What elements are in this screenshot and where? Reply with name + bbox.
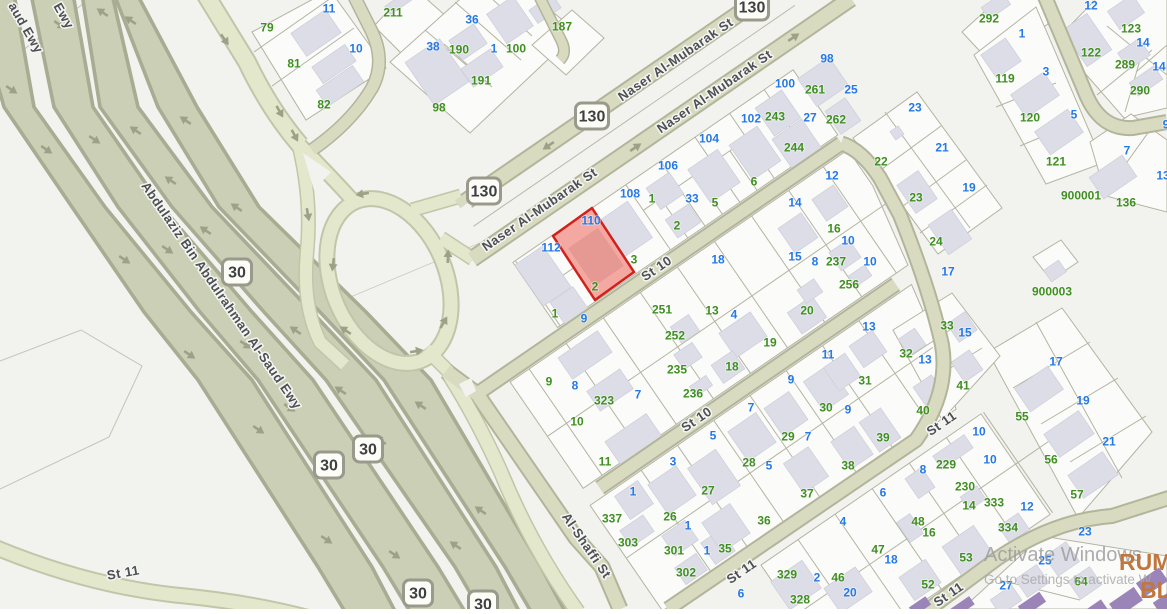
- svg-text:8: 8: [920, 463, 927, 477]
- svg-text:301: 301: [664, 544, 684, 558]
- svg-text:5: 5: [710, 429, 717, 443]
- svg-text:6: 6: [751, 175, 758, 189]
- svg-text:38: 38: [841, 459, 855, 473]
- svg-text:187: 187: [552, 20, 572, 34]
- svg-text:29: 29: [781, 430, 795, 444]
- svg-text:46: 46: [831, 571, 845, 585]
- svg-text:30: 30: [819, 401, 833, 415]
- svg-text:19: 19: [763, 336, 777, 350]
- svg-text:12: 12: [1084, 0, 1098, 13]
- svg-text:31: 31: [858, 374, 872, 388]
- svg-text:13: 13: [705, 304, 719, 318]
- svg-text:55: 55: [1015, 410, 1029, 424]
- svg-text:23: 23: [909, 191, 923, 205]
- svg-text:11: 11: [822, 348, 835, 362]
- svg-text:1: 1: [685, 519, 692, 533]
- svg-text:98: 98: [432, 101, 446, 115]
- svg-text:5: 5: [1071, 108, 1078, 122]
- svg-text:290: 290: [1130, 84, 1150, 98]
- svg-text:9: 9: [1163, 118, 1167, 132]
- svg-text:17: 17: [941, 265, 955, 279]
- svg-text:323: 323: [594, 394, 614, 408]
- svg-text:27: 27: [803, 111, 817, 125]
- svg-text:106: 106: [658, 159, 678, 173]
- svg-text:123: 123: [1121, 22, 1141, 36]
- svg-text:16: 16: [922, 526, 936, 540]
- svg-text:337: 337: [602, 512, 622, 526]
- svg-text:7: 7: [805, 430, 812, 444]
- svg-text:1: 1: [491, 42, 498, 56]
- svg-text:82: 82: [317, 98, 331, 112]
- svg-text:14: 14: [1136, 36, 1150, 50]
- svg-text:12: 12: [1020, 500, 1034, 514]
- svg-text:334: 334: [998, 521, 1018, 535]
- svg-text:10: 10: [349, 42, 363, 56]
- svg-text:9: 9: [581, 312, 588, 326]
- svg-text:329: 329: [777, 568, 797, 582]
- svg-text:328: 328: [790, 593, 810, 607]
- svg-text:52: 52: [921, 578, 935, 592]
- svg-text:2: 2: [674, 219, 681, 233]
- svg-text:256: 256: [839, 278, 859, 292]
- svg-text:57: 57: [1070, 488, 1084, 502]
- svg-text:56: 56: [1044, 453, 1058, 467]
- svg-text:8: 8: [572, 379, 579, 393]
- svg-text:108: 108: [620, 187, 640, 201]
- svg-text:262: 262: [826, 113, 846, 127]
- svg-text:122: 122: [1081, 46, 1101, 60]
- svg-text:38: 38: [426, 40, 440, 54]
- svg-text:303: 303: [618, 536, 638, 550]
- svg-text:102: 102: [741, 112, 761, 126]
- svg-text:236: 236: [683, 387, 703, 401]
- svg-text:5: 5: [712, 196, 719, 210]
- svg-text:15: 15: [958, 326, 972, 340]
- svg-text:19: 19: [1076, 394, 1090, 408]
- svg-text:17: 17: [1049, 355, 1063, 369]
- svg-text:23: 23: [1078, 525, 1092, 539]
- svg-text:252: 252: [665, 329, 685, 343]
- svg-text:1: 1: [630, 485, 637, 499]
- svg-text:4: 4: [840, 515, 847, 529]
- svg-text:53: 53: [959, 551, 973, 565]
- svg-text:292: 292: [979, 12, 999, 26]
- svg-text:2: 2: [592, 280, 599, 294]
- svg-text:11: 11: [599, 455, 612, 469]
- svg-text:6: 6: [738, 587, 745, 601]
- svg-text:229: 229: [936, 458, 956, 472]
- svg-text:261: 261: [805, 83, 825, 97]
- svg-text:3: 3: [670, 455, 677, 469]
- svg-text:36: 36: [465, 13, 479, 27]
- svg-text:30: 30: [409, 586, 427, 603]
- svg-text:35: 35: [718, 542, 732, 556]
- svg-text:289: 289: [1115, 58, 1135, 72]
- svg-text:BL: BL: [1140, 577, 1167, 603]
- svg-text:302: 302: [676, 566, 696, 580]
- svg-text:5: 5: [766, 459, 773, 473]
- svg-text:14: 14: [788, 196, 802, 210]
- svg-text:81: 81: [287, 57, 301, 71]
- svg-text:120: 120: [1020, 111, 1040, 125]
- svg-text:230: 230: [955, 480, 975, 494]
- svg-text:10: 10: [841, 234, 855, 248]
- svg-text:37: 37: [800, 487, 814, 501]
- svg-text:27: 27: [701, 484, 715, 498]
- svg-text:3: 3: [1043, 65, 1050, 79]
- svg-text:7: 7: [635, 388, 642, 402]
- svg-text:121: 121: [1046, 155, 1066, 169]
- svg-text:9: 9: [845, 403, 852, 417]
- svg-text:243: 243: [765, 110, 785, 124]
- svg-text:900003: 900003: [1032, 285, 1072, 299]
- svg-text:104: 104: [699, 132, 719, 146]
- svg-text:79: 79: [260, 21, 274, 35]
- svg-text:30: 30: [359, 442, 377, 459]
- svg-text:26: 26: [663, 510, 677, 524]
- svg-text:136: 136: [1116, 196, 1136, 210]
- svg-text:40: 40: [916, 404, 930, 418]
- svg-text:30: 30: [228, 265, 246, 282]
- svg-text:211: 211: [383, 6, 403, 20]
- svg-text:130: 130: [739, 0, 766, 17]
- svg-text:22: 22: [874, 155, 888, 169]
- svg-text:8: 8: [812, 255, 819, 269]
- svg-text:24: 24: [929, 235, 943, 249]
- svg-text:191: 191: [471, 74, 491, 88]
- svg-text:9: 9: [546, 375, 553, 389]
- svg-text:28: 28: [742, 456, 756, 470]
- svg-text:21: 21: [935, 141, 949, 155]
- svg-text:10: 10: [570, 415, 584, 429]
- svg-text:1: 1: [649, 192, 656, 206]
- svg-text:20: 20: [843, 586, 857, 600]
- svg-text:14: 14: [962, 499, 976, 513]
- svg-text:98: 98: [820, 52, 834, 66]
- svg-text:112: 112: [541, 241, 561, 255]
- svg-text:13: 13: [862, 320, 876, 334]
- svg-text:13: 13: [918, 353, 932, 367]
- svg-text:18: 18: [711, 253, 725, 267]
- svg-text:10: 10: [863, 255, 877, 269]
- svg-text:21: 21: [1102, 435, 1116, 449]
- svg-text:100: 100: [506, 42, 526, 56]
- svg-text:30: 30: [474, 597, 492, 610]
- svg-text:18: 18: [884, 553, 898, 567]
- svg-text:130: 130: [579, 109, 606, 126]
- svg-text:3: 3: [631, 253, 638, 267]
- svg-text:1: 1: [552, 307, 559, 321]
- svg-text:15: 15: [788, 250, 802, 264]
- svg-text:130: 130: [471, 184, 498, 201]
- svg-text:19: 19: [962, 181, 976, 195]
- svg-text:16: 16: [827, 222, 841, 236]
- svg-text:14: 14: [1152, 60, 1166, 74]
- svg-text:41: 41: [956, 379, 970, 393]
- svg-text:36: 36: [757, 514, 771, 528]
- svg-text:33: 33: [940, 319, 954, 333]
- svg-text:12: 12: [825, 169, 839, 183]
- svg-text:13: 13: [1156, 169, 1167, 183]
- svg-text:4: 4: [731, 308, 738, 322]
- svg-text:10: 10: [983, 453, 997, 467]
- svg-text:333: 333: [984, 496, 1004, 510]
- svg-text:33: 33: [685, 192, 699, 206]
- svg-text:1: 1: [1019, 27, 1026, 41]
- svg-text:2: 2: [814, 571, 821, 585]
- svg-text:7: 7: [748, 401, 755, 415]
- svg-text:119: 119: [995, 72, 1015, 86]
- svg-text:RUM: RUM: [1119, 549, 1167, 575]
- svg-text:1: 1: [704, 544, 711, 558]
- svg-text:6: 6: [880, 486, 887, 500]
- svg-text:23: 23: [908, 101, 922, 115]
- svg-text:30: 30: [320, 458, 338, 475]
- svg-text:18: 18: [725, 360, 739, 374]
- svg-text:235: 235: [667, 363, 687, 377]
- svg-text:32: 32: [899, 347, 913, 361]
- svg-text:47: 47: [871, 543, 885, 557]
- svg-text:244: 244: [784, 141, 804, 155]
- svg-text:11: 11: [323, 2, 336, 16]
- svg-text:237: 237: [826, 255, 846, 269]
- svg-text:20: 20: [800, 304, 814, 318]
- svg-text:39: 39: [876, 431, 890, 445]
- svg-text:9: 9: [788, 373, 795, 387]
- svg-text:900001: 900001: [1061, 189, 1101, 203]
- svg-text:190: 190: [449, 43, 469, 57]
- svg-text:25: 25: [844, 83, 858, 97]
- svg-text:10: 10: [972, 425, 986, 439]
- svg-text:251: 251: [652, 303, 672, 317]
- svg-text:100: 100: [775, 77, 795, 91]
- svg-text:110: 110: [581, 214, 601, 228]
- svg-text:7: 7: [1124, 144, 1131, 158]
